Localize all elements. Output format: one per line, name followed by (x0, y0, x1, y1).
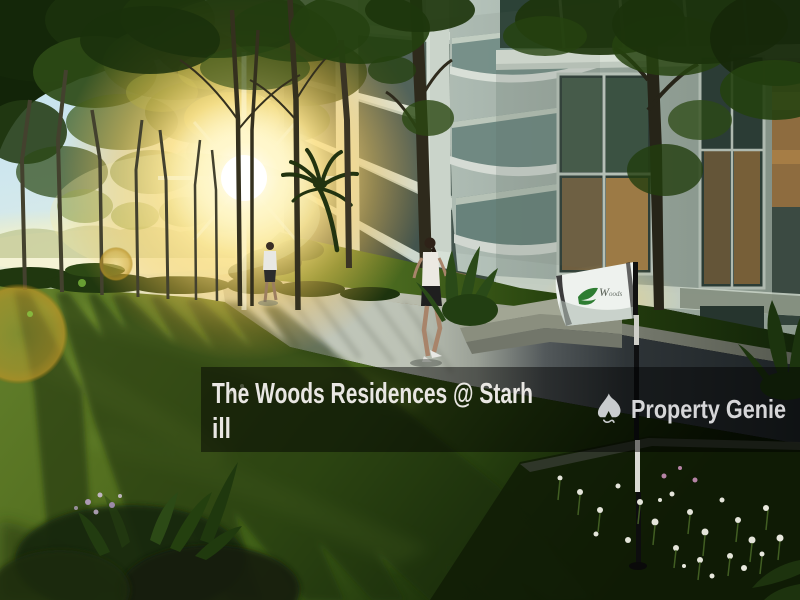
svg-text:oods: oods (609, 290, 623, 298)
svg-text:The Woods Residences @ Starh: The Woods Residences @ Starh (212, 378, 533, 410)
svg-text:Property Genie: Property Genie (631, 394, 786, 424)
svg-text:ill: ill (212, 413, 231, 445)
